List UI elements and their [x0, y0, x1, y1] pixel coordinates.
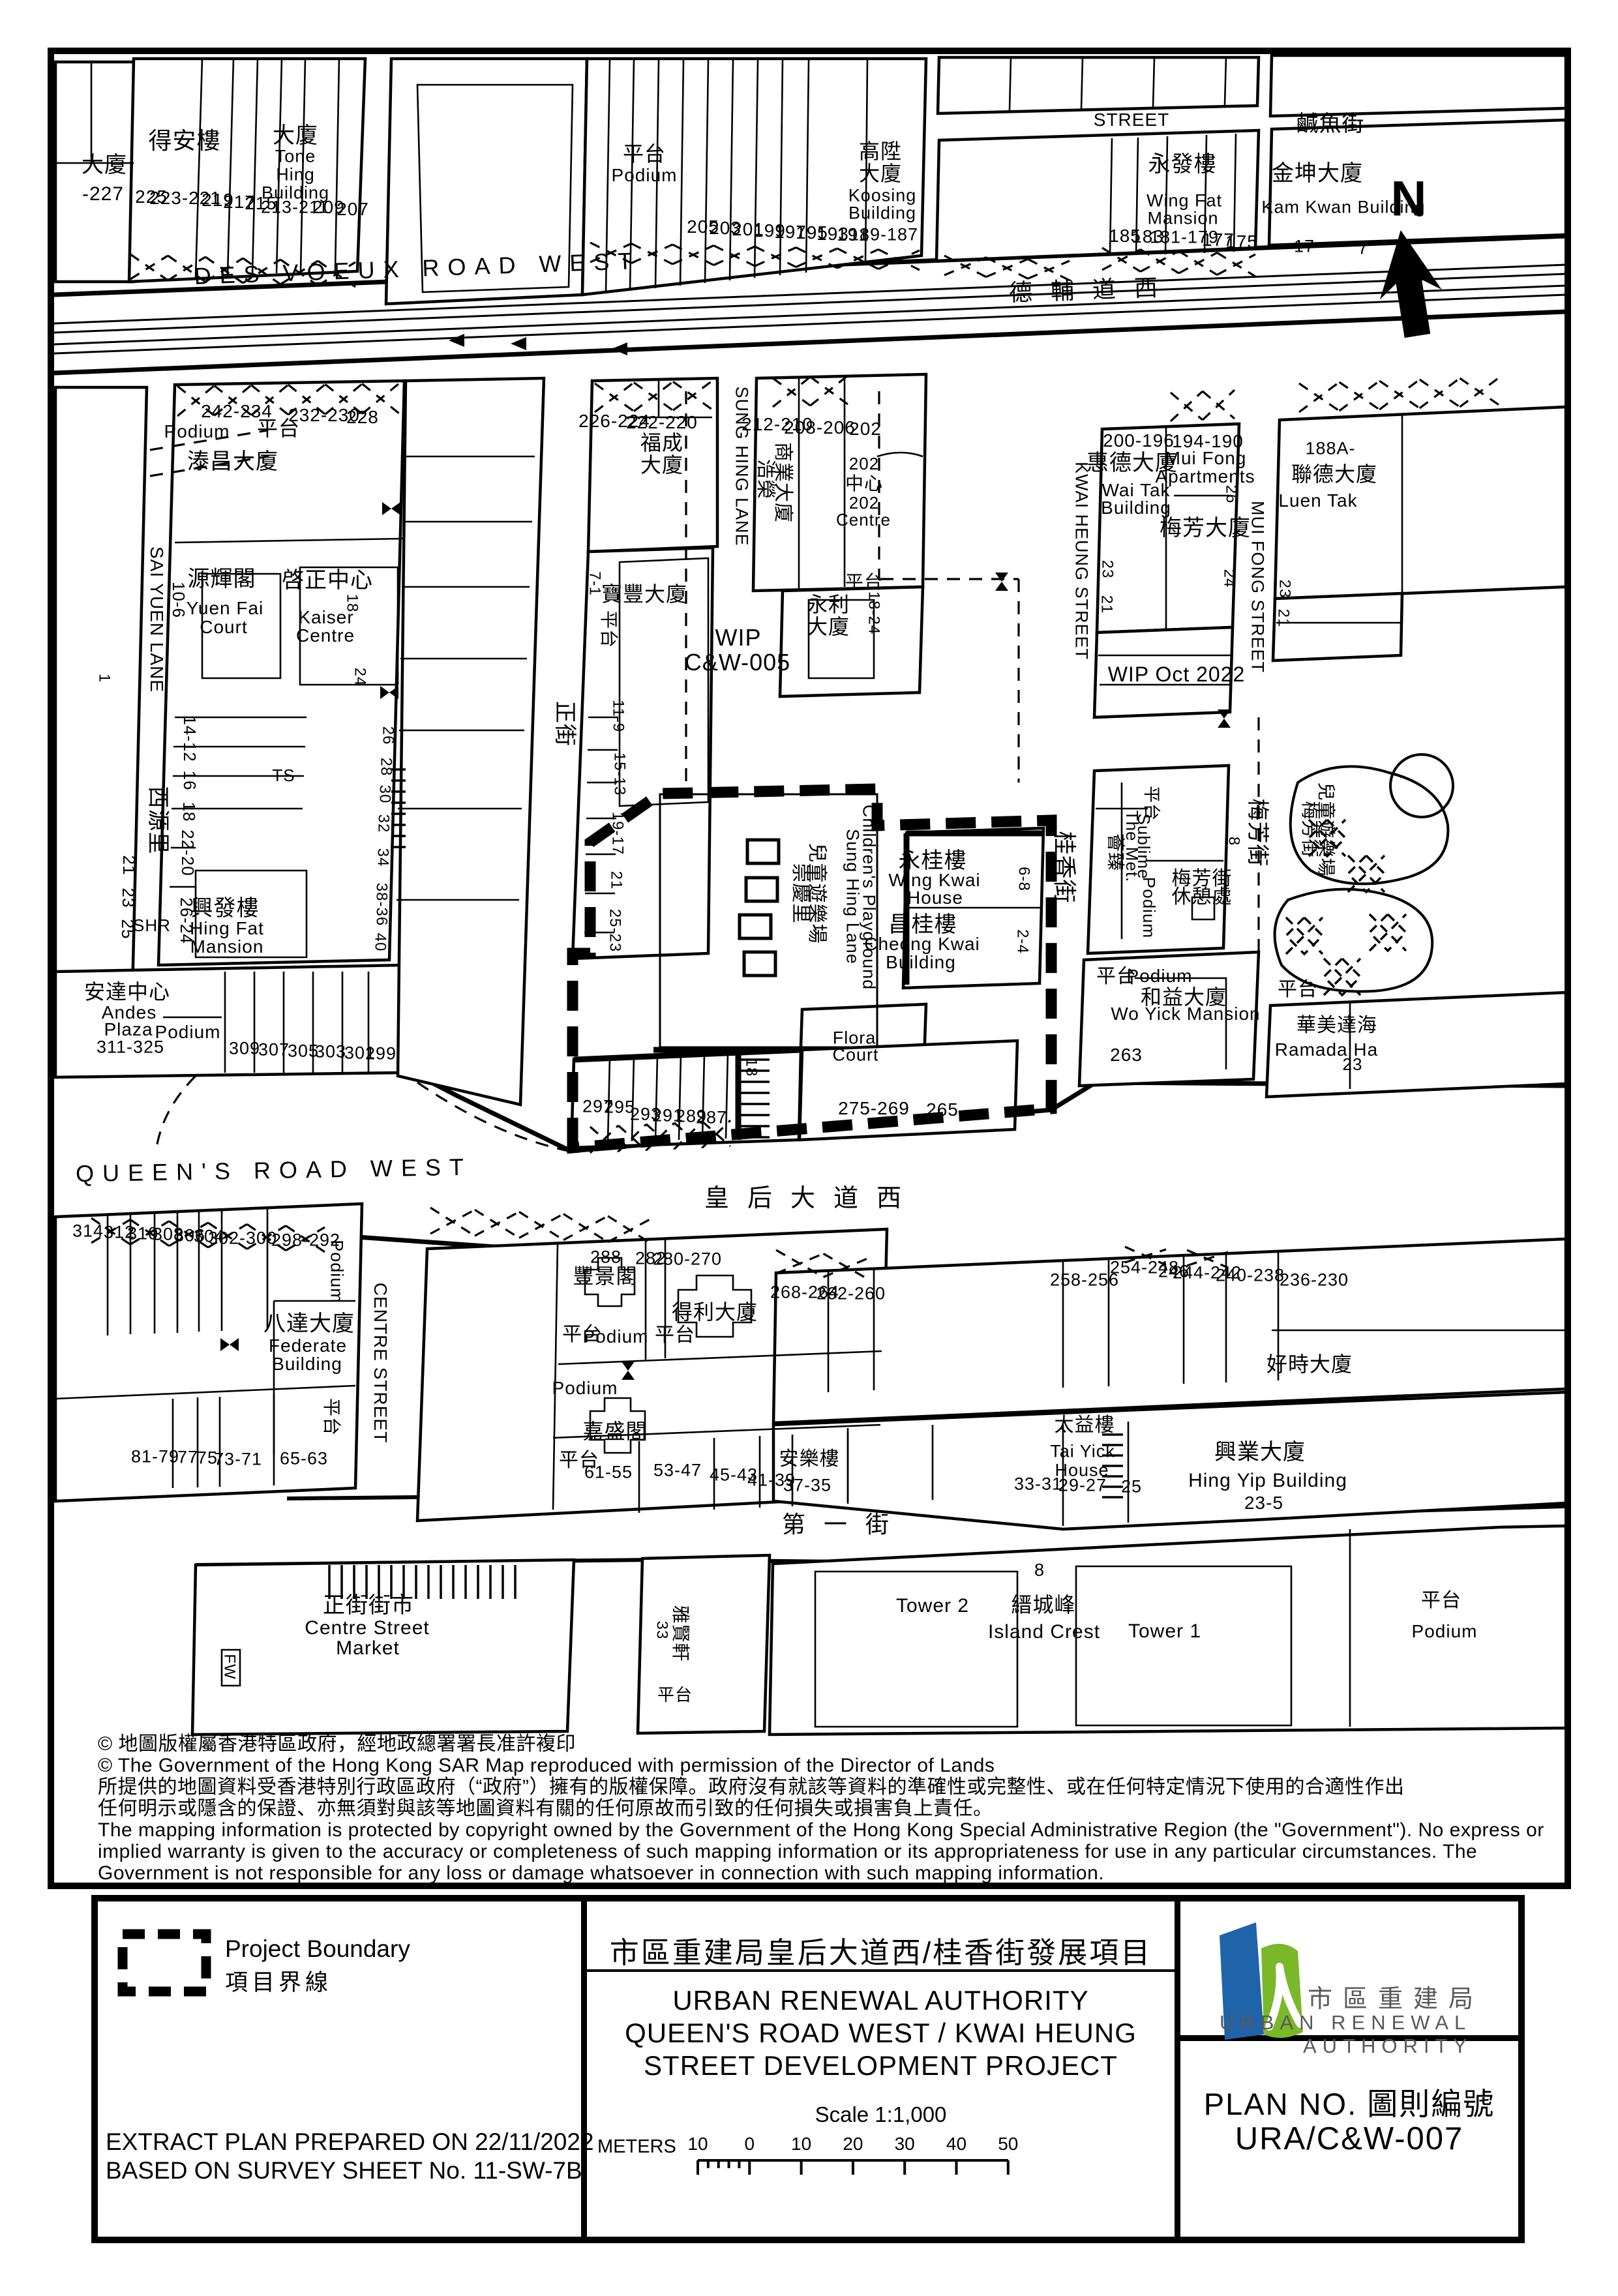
map-label: 梅芳街 [1246, 799, 1269, 867]
legend-cell: Project Boundary 項目界線 EXTRACT PLAN PREPA… [98, 1901, 587, 2237]
map-label: 200-196 [1103, 431, 1175, 451]
map-label: 21 [608, 871, 624, 890]
map-label: 303 [315, 1043, 346, 1062]
map-label: 34 [374, 848, 391, 867]
map-label: Hing Yip Building [1188, 1470, 1347, 1491]
map-label: Building [886, 953, 956, 972]
map-label: 309 [229, 1039, 260, 1058]
map-label: 189-187 [849, 226, 918, 245]
project-boundary-symbol [116, 1928, 214, 1999]
ura-logo-cell: 市區重建局 URBAN RENEWAL AUTHORITY [1180, 1901, 1518, 2041]
map-label: 得利大廈 [672, 1302, 758, 1324]
scale-tick-label: 10 [791, 2134, 811, 2154]
map-label: House [907, 888, 963, 908]
map-label: 平台 [1142, 786, 1160, 821]
map-label: 23-5 [1244, 1493, 1283, 1513]
map-label: 金坤大廈 [1272, 162, 1363, 185]
map-label: 175 [1225, 232, 1258, 252]
map-label: WIP [715, 625, 762, 650]
map-label: DES VOEUX ROAD WEST [194, 248, 641, 289]
legend-boundary-label-zh: 項目界線 [225, 1964, 332, 1997]
ura-name-en-1: URBAN RENEWAL [1220, 2011, 1471, 2035]
map-label: 正街街市 [323, 1594, 414, 1617]
map-label: 好時大廈 [1266, 1354, 1353, 1376]
map-label: 25 [1121, 1478, 1142, 1497]
copyright-block: © 地圖版權屬香港特區政府，經地政總署署長准許複印© The Governmen… [98, 1733, 1559, 1884]
map-label: 23 [1276, 580, 1293, 599]
map-label: Building [848, 204, 916, 223]
map-label: 222-220 [626, 413, 698, 432]
map-label: N [1391, 173, 1427, 226]
map-label: -227 [82, 184, 124, 205]
map-label: 平台 [845, 573, 883, 592]
map-label: Podium [1412, 1622, 1478, 1641]
title-cell: 市區重建局皇后大道西/桂香街發展項目 URBAN RENEWAL AUTHORI… [587, 1901, 1180, 2237]
title-band: Project Boundary 項目界線 EXTRACT PLAN PREPA… [91, 1895, 1525, 2243]
map-label: 18 [179, 802, 198, 822]
map-label: 18-24 [865, 591, 882, 634]
map-label: 311-325 [97, 1038, 164, 1057]
map-label: 30 [376, 785, 393, 804]
map-label: Koosing [848, 186, 917, 205]
map-label: 平台 [623, 143, 666, 166]
copyright-line: 任何明示或隱含的保證、亦無須對與該等地圖資料有關的任何原故而引致的任何損失或損害… [98, 1798, 1559, 1819]
title-divider [587, 1969, 1175, 1972]
map-label: 275-269 [838, 1099, 910, 1118]
map-label: Court [200, 618, 247, 637]
map-label: 61-55 [584, 1463, 633, 1482]
map-label: 228 [346, 408, 379, 427]
map-label: 1 [96, 674, 112, 683]
map-label: 兒童遊樂場 [806, 843, 827, 944]
project-title-en-2: QUEEN'S ROAD WEST / KWAI HEUNG [587, 2018, 1175, 2049]
map-label: Tower 1 [1128, 1621, 1201, 1642]
map-label: 8 [1034, 1561, 1045, 1580]
map-label: 280-270 [653, 1250, 722, 1269]
map-label: 2-4 [1014, 929, 1030, 954]
map-label: 207 [337, 200, 369, 219]
copyright-line: Government is not responsible for any lo… [98, 1862, 1559, 1884]
map-label: 287 [696, 1109, 727, 1127]
map-label: CENTRE STREET [370, 1283, 390, 1443]
map-label: 15-13 [611, 753, 627, 796]
project-title-zh: 市區重建局皇后大道西/桂香街發展項目 [587, 1929, 1175, 1971]
map-label: 14-12 [180, 715, 198, 762]
map-label: Children's Playground [860, 805, 878, 990]
legend-boundary-label-en: Project Boundary [225, 1935, 410, 1963]
map-label: Sublime [1134, 814, 1152, 880]
map-label: 302-300 [208, 1229, 277, 1248]
map-label: SHR [133, 917, 171, 935]
map-label: 鹹魚街 [1296, 112, 1365, 136]
map-label: 雅賢軒 [670, 1605, 690, 1662]
map-label: 28 [378, 758, 394, 777]
map-label: 中心 [845, 474, 883, 494]
scale-tick-label: 30 [895, 2134, 915, 2154]
map-label: 大廈 [82, 153, 127, 177]
map-label: Podium [327, 1240, 346, 1304]
map-label: 平台 [1278, 979, 1318, 1000]
map-label: Yuen Fai [187, 599, 264, 618]
map-label: 26 [380, 726, 396, 745]
map-label: Wo Yick Mansion [1111, 1004, 1260, 1024]
map-label: 53-47 [653, 1461, 702, 1480]
map-label: 興發樓 [191, 897, 260, 920]
map-label: Mansion [1147, 209, 1218, 228]
map-label: SAI YUEN LANE [147, 546, 166, 693]
map-label: 263 [1110, 1045, 1143, 1065]
map-label: 33-31 [1014, 1475, 1062, 1494]
map-label: 兒童遊樂場 [1316, 782, 1336, 876]
map-label: 202 [849, 419, 882, 439]
map-label: 聯德大廈 [1291, 464, 1377, 486]
map-label: 21 [119, 856, 138, 876]
map-label: 21 [1098, 595, 1115, 614]
map-label: 24 [352, 668, 368, 687]
map-label: 寶豐大廈 [601, 584, 687, 606]
map-label: 安樂樓 [779, 1449, 840, 1470]
map-label: 德輔道西 [1008, 275, 1176, 305]
map-label: 29-27 [1058, 1476, 1107, 1495]
map-label: 7-1 [586, 571, 603, 596]
map-label: 永利 大廈 [807, 594, 850, 638]
scale-tick-label: 10 [687, 2134, 708, 2154]
scale-tick-label: 0 [745, 2134, 755, 2154]
project-title-en-1: URBAN RENEWAL AUTHORITY [587, 1985, 1175, 2016]
map-label: 258-256 [1050, 1271, 1119, 1290]
map-label: 288 [590, 1248, 622, 1267]
map-label: 16 [180, 771, 198, 791]
map-label: 17 [1294, 237, 1315, 256]
map-label: 梅芳大廈 [1160, 516, 1251, 540]
map-label: Building [1101, 498, 1171, 518]
map-label: 興業大廈 [1214, 1440, 1306, 1464]
map-label: 八達大廈 [263, 1312, 355, 1335]
map-label: 安達中心 [84, 981, 170, 1004]
map-label: 高陞 大廈 [859, 141, 902, 185]
map-label: 236-230 [1280, 1271, 1349, 1290]
map-label: MUI FONG STREET [1248, 501, 1267, 673]
map-label: 73-71 [214, 1450, 262, 1469]
map-label: 208-206 [784, 418, 856, 438]
map-label: C&W-005 [685, 650, 790, 675]
map-label: 正街 [553, 701, 577, 747]
map-label: 桂香街 [1052, 831, 1077, 903]
map-label: Tai Yick [1050, 1442, 1115, 1461]
map-label: 大廈 [273, 124, 318, 147]
right-column: 市區重建局 URBAN RENEWAL AUTHORITY PLAN NO. 圖… [1180, 1901, 1518, 2237]
map-label: 38-36 [373, 883, 389, 926]
copyright-line: © The Government of the Hong Kong SAR Ma… [98, 1755, 1559, 1776]
map-label: Centre [836, 511, 891, 529]
map-label: 18 [743, 1058, 759, 1077]
map-label: Tower 2 [896, 1596, 969, 1617]
map-label: 24 [1221, 569, 1237, 588]
map-label: Building [272, 1354, 342, 1374]
map-label: 37-35 [783, 1476, 831, 1495]
map-label: 21 [1275, 609, 1291, 628]
map-label: Podium [155, 1022, 221, 1042]
map-label: 平台 [657, 1686, 693, 1705]
copyright-line: 所提供的地圖資料受香港特別行政區政府（“政府”）擁有的版權保障。政府沒有就該等資… [98, 1776, 1559, 1798]
map-label: 26 [1223, 485, 1239, 504]
extract-plan-page: 大廈-227得安樓225223-221219217215大廈ToneHingBu… [0, 0, 1618, 2296]
map-label: KWAI HEUNG STREET [1072, 462, 1091, 660]
map-label: 源輝閣 [188, 567, 256, 591]
copyright-line: implied warranty is given to the accurac… [98, 1841, 1559, 1862]
map-label: 314 [72, 1222, 104, 1241]
copyright-line: The mapping information is protected by … [98, 1819, 1559, 1841]
map-label: QUEEN'S ROAD WEST [76, 1155, 472, 1187]
plan-no-label: PLAN NO. 圖則編號 [1180, 2079, 1518, 2124]
map-label: 265 [926, 1100, 959, 1120]
scale-tick-label: 40 [946, 2134, 966, 2154]
scale-bar: 1001020304050 [672, 2126, 1037, 2192]
map-label: WIP Oct 2022 [1108, 664, 1246, 686]
map-label: 平台 [655, 1325, 695, 1346]
map-label: 188A- [1305, 440, 1355, 458]
map-label: 昌桂樓 [889, 913, 957, 936]
map-label: 啓正中心 [282, 569, 373, 592]
map-label: 縉城峰 [1011, 1594, 1075, 1617]
map-label: 305 [288, 1042, 319, 1061]
map-label: Podium [552, 1379, 618, 1398]
map-label: Federate [269, 1336, 347, 1356]
map-label: FW [221, 1654, 237, 1679]
map-label: STREET [1094, 110, 1169, 130]
map-label: 40 [372, 933, 388, 952]
map-label: 平台 [1421, 1590, 1461, 1611]
map-label: 32 [375, 814, 391, 833]
plan-no-value: URA/C&W-007 [1180, 2121, 1518, 2157]
map-label: 得安樓 [148, 128, 220, 153]
map-label: 嘉盛閣 [582, 1421, 647, 1443]
map-label: 7 [1358, 239, 1368, 258]
map-label: 22-20 [178, 829, 196, 876]
map-label: Tone [275, 147, 316, 166]
map-label: 第一街 [782, 1512, 907, 1537]
map-label: 18 [344, 594, 360, 613]
map-label: 240-238 [1216, 1266, 1285, 1285]
plan-no-cell: PLAN NO. 圖則編號 URA/C&W-007 [1180, 2041, 1518, 2237]
map-label: 西源里 [146, 786, 170, 855]
map-label: 25-23 [607, 909, 623, 952]
map-label: 8 [1225, 837, 1242, 846]
ura-name-zh: 市區重建局 [1308, 1978, 1484, 2014]
map-label: Podium [1127, 966, 1193, 986]
map-label: 溙昌大廈 [187, 450, 278, 473]
map-label: 休憩處 [1172, 887, 1233, 908]
scale-label: Scale 1:1,000 [587, 2102, 1175, 2127]
map-label: SUNG HING LANE [732, 386, 751, 546]
scale-meters-label: METERS [597, 2136, 676, 2158]
map-label: Luen Tak [1278, 491, 1357, 511]
project-title-en-3: STREET DEVELOPMENT PROJECT [587, 2050, 1175, 2081]
map-label: 商業大廈 [772, 442, 793, 523]
map-label: 11-9 [610, 700, 626, 732]
map-label: 81-79 [131, 1448, 179, 1467]
map-label: 262-260 [816, 1285, 886, 1304]
map-label: Wing Fat [1146, 192, 1222, 211]
map-label: Market [336, 1638, 400, 1659]
map-label: Mui Fong [1165, 449, 1247, 468]
map-label: 23 [1099, 560, 1115, 579]
map-label: Podium [583, 1327, 649, 1347]
map-label: 平台 [322, 1398, 341, 1436]
map-label: TS [272, 767, 295, 785]
survey-sheet-ref: BASED ON SURVEY SHEET No. 11-SW-7B [106, 2157, 582, 2184]
map-label: 23 [1343, 1056, 1363, 1074]
map-label: Podium [1139, 877, 1158, 938]
map-label: 豐景閣 [573, 1266, 637, 1288]
map-label: 19-17 [609, 812, 625, 855]
map-label: Podium [164, 422, 230, 441]
map-label: 307 [258, 1041, 290, 1060]
map-label: Centre Street [305, 1618, 429, 1639]
map-label: 65-63 [280, 1450, 328, 1469]
map-label: 永發樓 [1148, 153, 1217, 176]
map-label: Hing [276, 166, 315, 185]
map-label: 10-6 [169, 582, 187, 618]
map-label: 33 [653, 1621, 670, 1640]
map-label: 華美達海 [1296, 1015, 1377, 1036]
map-label: 平台 [599, 610, 618, 648]
map-label: Mansion [190, 937, 264, 957]
map-label: Podium [612, 166, 678, 185]
map-label: 皇后大道西 [704, 1185, 920, 1212]
map-label: 23 [119, 888, 137, 908]
map-label: Court [832, 1046, 878, 1065]
map-label: 299 [365, 1045, 397, 1064]
copyright-line: © 地圖版權屬香港特區政府，經地政總署署長准許複印 [98, 1733, 1559, 1755]
map-label: Plaza [104, 1020, 153, 1039]
map-label: 永桂樓 [899, 849, 967, 872]
map-label: Hing Fat [190, 919, 264, 938]
extract-plan-date: EXTRACT PLAN PREPARED ON 22/11/2022 [106, 2128, 594, 2156]
map-label: 6-8 [1015, 867, 1032, 891]
map-label: Apartments [1155, 467, 1255, 486]
map-label: Centre [296, 626, 355, 646]
map-label: Island Crest [988, 1622, 1100, 1643]
map-label: Cheong Kwai [864, 934, 980, 954]
scale-tick-label: 20 [843, 2134, 863, 2154]
map-label: 202 [849, 455, 879, 473]
map-label: 太益樓 [1055, 1415, 1115, 1436]
map-label: 福成 大廈 [640, 432, 683, 477]
scale-tick-label: 50 [998, 2134, 1018, 2154]
map-label: 77 [177, 1448, 198, 1467]
